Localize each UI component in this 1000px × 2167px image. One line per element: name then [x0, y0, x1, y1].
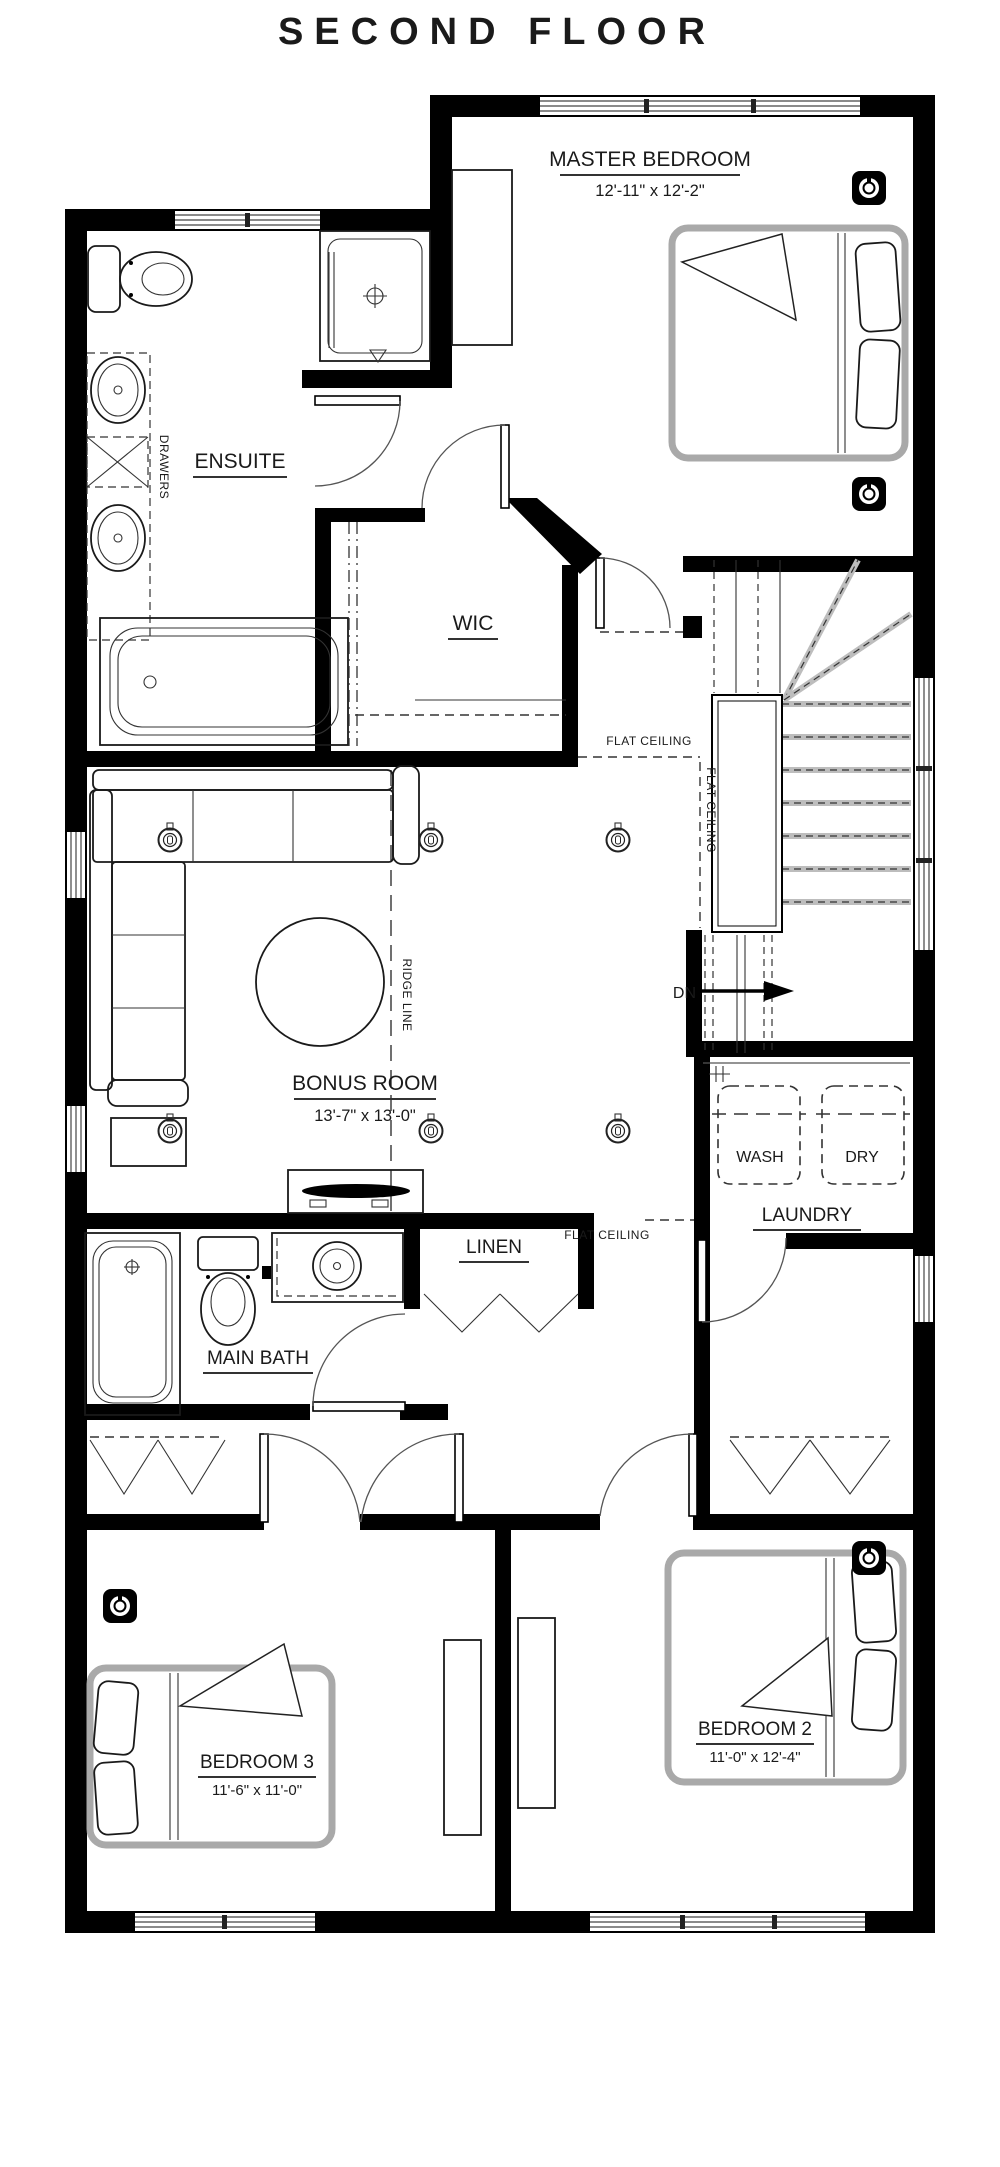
page-title: SECOND FLOOR [278, 11, 716, 53]
round-ottoman [256, 918, 384, 1046]
bedroom3-blanket-fold [180, 1644, 302, 1716]
master-window [540, 97, 860, 115]
room-dims-master-bedroom: 12'-11" x 12'-2" [595, 182, 705, 200]
ensuite-window [175, 211, 320, 229]
laundry-hookup-icon [709, 1066, 730, 1082]
drawers-label: DRAWERS [157, 435, 171, 499]
stair-treads [782, 704, 911, 902]
room-label-linen: LINEN [466, 1237, 522, 1258]
stairs-down-label: DN [673, 985, 696, 1002]
ceiling-speaker-icon [852, 1541, 886, 1575]
bath-vanity [262, 1233, 403, 1302]
ensuite-door [315, 396, 400, 486]
room-dims-bedroom-3: 11'-6" x 11'-0" [212, 1782, 302, 1799]
ensuite-shower [320, 231, 430, 362]
room-label-master-bedroom: MASTER BEDROOM [549, 148, 751, 171]
hall-swing-door [361, 1434, 463, 1522]
stair-window [915, 678, 933, 950]
stairs-down-arrow-icon [700, 981, 794, 1001]
master-dresser [452, 170, 512, 345]
laundry-room [709, 1066, 910, 1184]
stair-lower-flight [705, 935, 772, 1053]
bedroom3-dresser [444, 1640, 481, 1835]
main-bath [85, 1233, 403, 1415]
flat-ceiling-label: FLAT CEILING [606, 734, 692, 748]
bonus-room [90, 766, 630, 1213]
washer-label: WASH [736, 1149, 783, 1166]
bedroom2-closet-bifold-door [730, 1437, 890, 1494]
second-floor-plan: SECOND FLOOR [0, 0, 1000, 2167]
ceiling-speaker-icon [852, 171, 886, 205]
ceiling-annotations: FLAT CEILING FLAT CEILING FLAT CEILING R… [391, 734, 718, 1242]
shower-drain-icon [363, 284, 387, 308]
bedroom2-dresser [518, 1618, 555, 1808]
bonus-window-upper [67, 832, 85, 898]
room-label-main-bath: MAIN BATH [207, 1348, 309, 1369]
bedroom3-door [260, 1434, 360, 1522]
vanity-sink [91, 505, 145, 571]
vanity-sink [91, 357, 145, 423]
sectional-sofa [90, 766, 419, 1106]
room-label-wic: WIC [453, 612, 494, 635]
pot-light-icon [607, 1114, 630, 1143]
bedroom3-closet-bifold-door [90, 1437, 225, 1494]
main-bath-door [313, 1314, 405, 1411]
linen-bifold-door [424, 1294, 578, 1332]
laundry-window [915, 1256, 933, 1322]
pot-light-icon [159, 823, 182, 852]
bedroom3-bed-pillows [93, 1680, 139, 1835]
bathtub [85, 1233, 180, 1415]
floor-plan-page: SECOND FLOOR [0, 0, 1000, 2167]
tub-faucet-icon [124, 1259, 140, 1275]
bedroom3-window [135, 1913, 315, 1931]
stair-winder-treads [784, 560, 911, 700]
room-label-laundry: LAUNDRY [762, 1205, 853, 1226]
ensuite-toilet [88, 246, 192, 312]
room-dims-bedroom-2: 11'-0" x 12'-4" [709, 1749, 800, 1766]
master-bed-blanket-fold [682, 234, 796, 320]
master-bedroom [452, 170, 905, 511]
ceiling-speaker-icon [852, 477, 886, 511]
ensuite-bathtub [100, 618, 348, 745]
vanity-cabinet [87, 437, 148, 487]
toilet [198, 1237, 258, 1345]
ceiling-speaker-icon [103, 1589, 137, 1623]
bedroom2-blanket-fold [742, 1638, 832, 1716]
pot-light-icon [420, 1114, 443, 1143]
pot-light-icon [420, 823, 443, 852]
ensuite: DRAWERS [87, 231, 430, 745]
bedroom2-door [600, 1434, 697, 1516]
dryer-box [816, 1086, 910, 1184]
flat-ceiling-label: FLAT CEILING [704, 767, 718, 853]
room-label-bedroom-2: BEDROOM 2 [698, 1719, 812, 1740]
bedroom-2 [518, 1541, 903, 1808]
room-label-bedroom-3: BEDROOM 3 [200, 1752, 314, 1773]
washer-box [712, 1086, 806, 1184]
ensuite-vanity: DRAWERS [87, 353, 171, 640]
bedroom2-bed [668, 1553, 903, 1782]
laundry-door [698, 1238, 786, 1322]
towel-bar-bracket [262, 1266, 271, 1279]
tv-console [288, 1170, 423, 1213]
bedroom-3 [90, 1589, 481, 1845]
room-dims-bonus-room: 13'-7" x 13'-0" [314, 1107, 416, 1125]
ridge-line-label: RIDGE LINE [400, 958, 414, 1031]
dryer-label: DRY [845, 1149, 879, 1166]
flat-ceiling-label: FLAT CEILING [564, 1228, 650, 1242]
vanity-sink [313, 1242, 361, 1290]
bedroom2-bed-pillows [851, 1561, 896, 1732]
hall-door [596, 558, 683, 632]
bonus-window-lower [67, 1106, 85, 1172]
wic-door [422, 425, 509, 508]
room-label-ensuite: ENSUITE [194, 450, 285, 473]
master-bed-pillows [855, 242, 901, 429]
pot-light-icon [607, 823, 630, 852]
stair-landing-rail [712, 695, 782, 932]
bedroom2-window [590, 1913, 865, 1931]
room-label-bonus-room: BONUS ROOM [292, 1072, 438, 1095]
